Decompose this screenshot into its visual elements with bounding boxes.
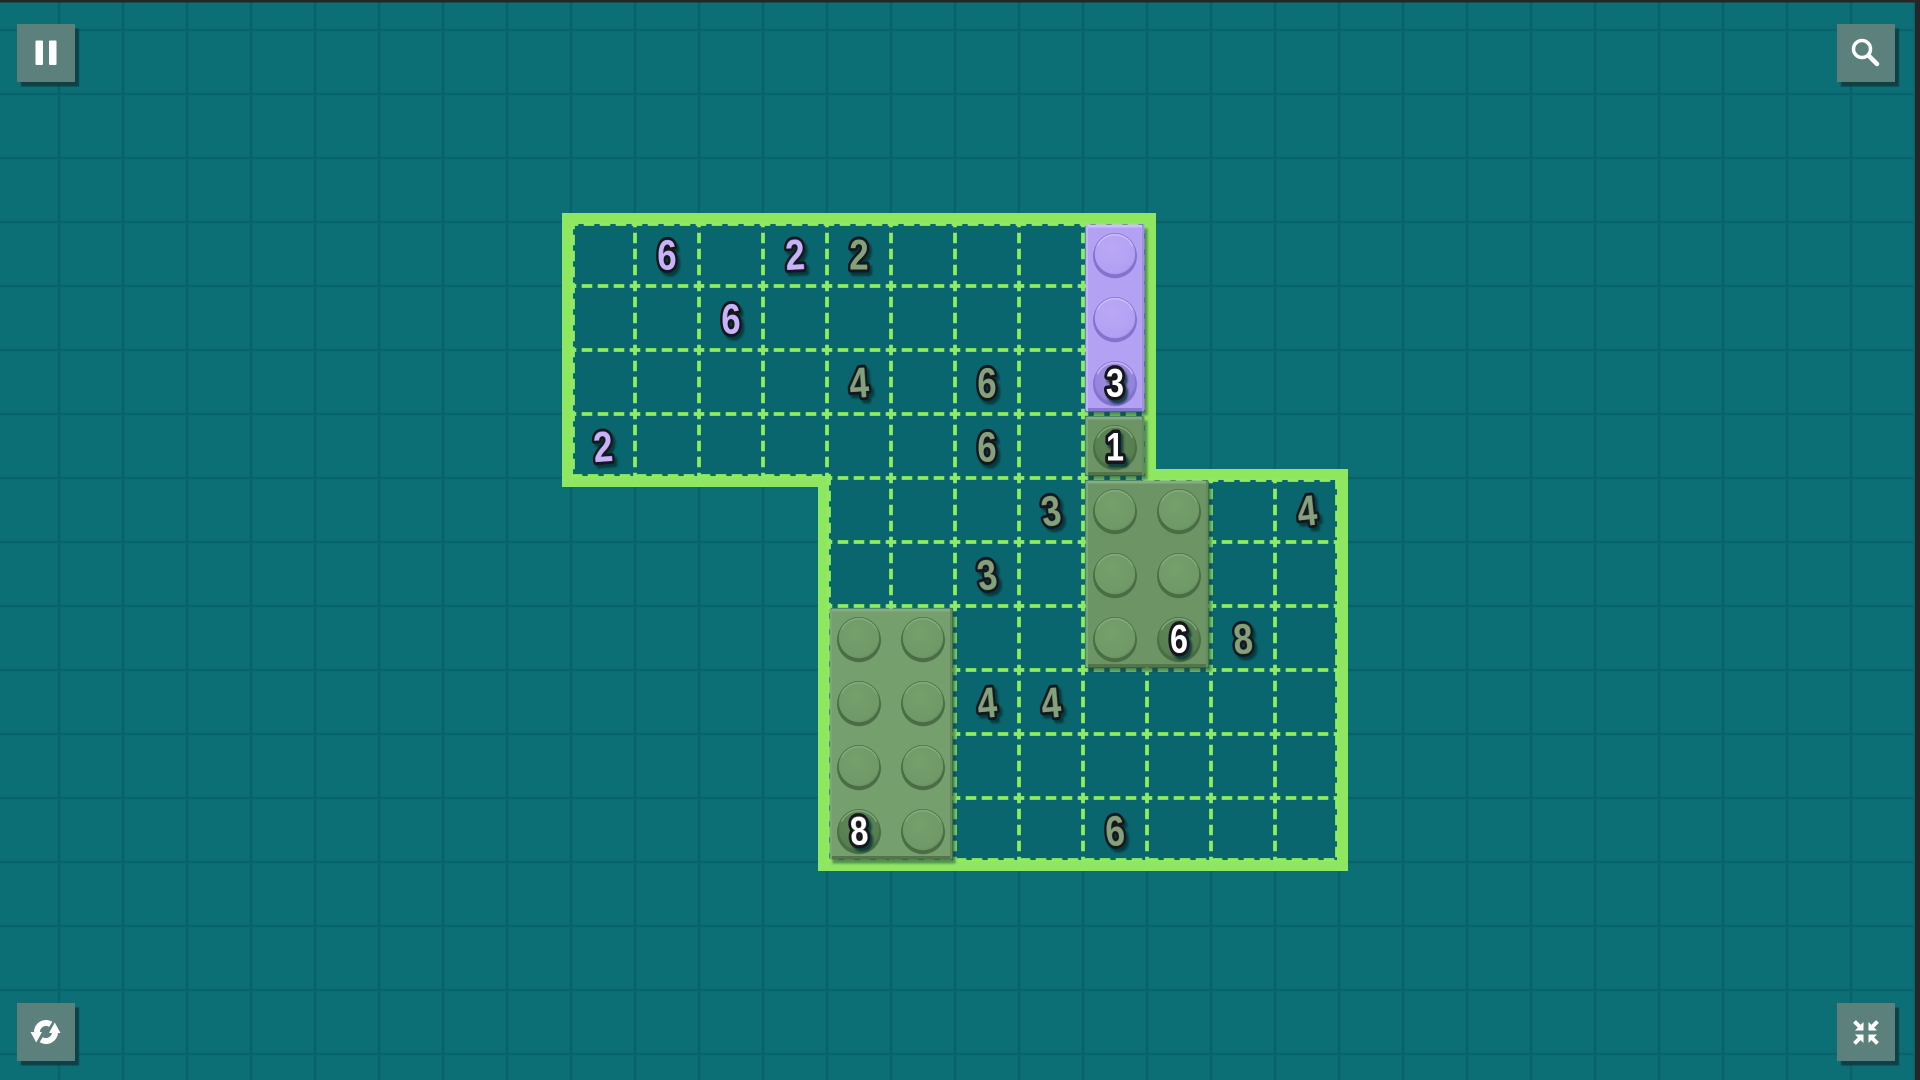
svg-text:6: 6: [1104, 807, 1127, 856]
svg-text:6: 6: [977, 424, 996, 472]
svg-text:6: 6: [977, 360, 996, 408]
svg-text:8: 8: [1232, 615, 1255, 664]
svg-text:2: 2: [592, 423, 615, 472]
svg-text:2: 2: [784, 231, 806, 280]
svg-text:6: 6: [657, 232, 676, 280]
svg-text:6: 6: [1170, 617, 1188, 661]
svg-text:2: 2: [849, 232, 868, 280]
svg-text:4: 4: [848, 359, 871, 408]
svg-text:8: 8: [849, 809, 870, 854]
svg-text:6: 6: [721, 296, 740, 344]
svg-text:1: 1: [1106, 425, 1124, 469]
svg-text:3: 3: [1106, 361, 1124, 405]
